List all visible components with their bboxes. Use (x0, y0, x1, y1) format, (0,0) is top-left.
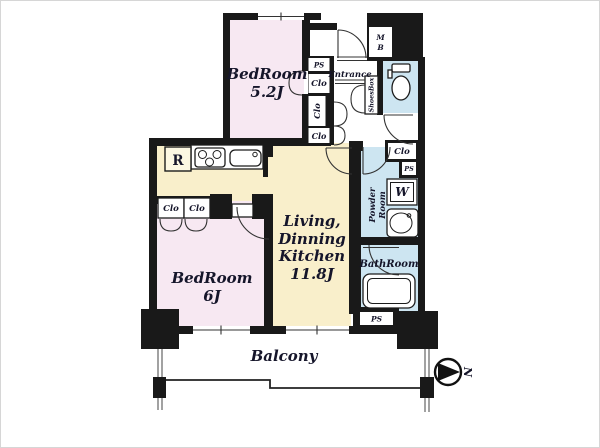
closet-bifold-doors (334, 126, 345, 145)
refrigerator-label: R (172, 153, 184, 169)
wall-segment (250, 326, 286, 334)
wall-segment (349, 326, 397, 334)
wall-segment (418, 57, 425, 313)
pipe-space-label: PS (403, 165, 414, 173)
entrance-step (335, 80, 365, 84)
entrance-label: Entrance (327, 70, 372, 80)
bedroom-upper-size: 5.2J (250, 83, 284, 101)
ldk-label-line3: Kitchen (278, 247, 345, 265)
north-label: N (461, 366, 474, 378)
wall-segment (304, 13, 321, 20)
shoes-box-label: ShoesBox (368, 77, 376, 112)
corner-pillar (141, 309, 179, 349)
railing-post-right (420, 377, 434, 398)
bedroom-lower-size: 6J (203, 287, 221, 305)
railing-line (165, 380, 420, 388)
ldk-label-line2: Dinning (277, 230, 346, 248)
toilet-handle (388, 70, 392, 78)
ldk-label-line1: Living, (282, 212, 340, 230)
wall-segment (263, 143, 268, 177)
closet-label: Clo (163, 204, 179, 214)
balcony-label: Balcony (250, 347, 319, 365)
entrance-door-arc (338, 30, 366, 58)
toilet-bowl (392, 76, 410, 100)
meter-box-label-m: M (375, 33, 385, 42)
wall-segment (179, 326, 193, 334)
meter-box (369, 27, 392, 57)
closet-bifold-doors (334, 102, 347, 126)
pipe-space-label: PS (370, 315, 383, 324)
railing-post-left (153, 377, 166, 398)
entrance-threshold (337, 57, 367, 61)
wall-segment (149, 138, 157, 313)
closet-label: Clo (311, 79, 327, 89)
bathroom-label: BathRoom (358, 259, 418, 270)
bedroom-lower-name: BedRoom (170, 269, 252, 287)
railing-stubs (158, 398, 429, 412)
floor-plan: N (0, 0, 600, 448)
wall-segment (210, 194, 232, 219)
bedroom-lower-floor (155, 201, 268, 328)
closet-label: Clo (394, 147, 410, 157)
floor-plan-drawing: N (1, 1, 600, 448)
wall-segment (310, 23, 337, 30)
closet-label: Clo (313, 103, 323, 119)
meter-box-label-b: B (376, 43, 383, 52)
closet-label: Clo (189, 204, 205, 214)
powder-room-label-line2: Room (378, 191, 388, 219)
north-arrow: N (435, 359, 474, 385)
ldk-label-size: 11.8J (290, 265, 335, 283)
pipe-space-label: PS (313, 61, 324, 70)
wall-segment (353, 237, 418, 245)
toilet-door-arc (384, 115, 413, 144)
wall-segment (349, 144, 361, 314)
washer-label: W (395, 185, 410, 199)
bedroom-upper-name: BedRoom (225, 65, 307, 83)
toilet-tank (392, 64, 410, 72)
wall-segment (264, 204, 273, 326)
shoes-box-bifold-doors (351, 85, 365, 113)
door-pocket (232, 204, 253, 217)
corner-pillar (397, 311, 438, 349)
powder-room-label-line1: Powder (368, 187, 378, 224)
closet-label: Clo (312, 131, 327, 141)
